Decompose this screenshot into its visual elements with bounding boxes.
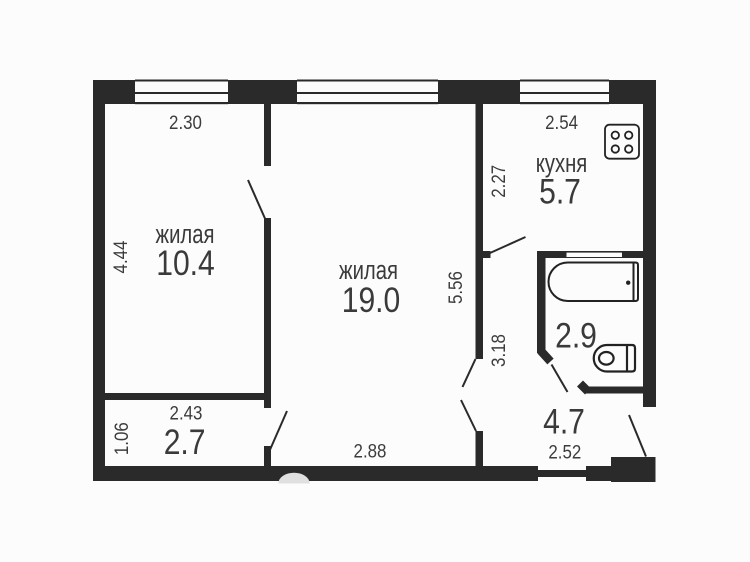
svg-text:2.52: 2.52 [548,441,581,462]
svg-text:1.06: 1.06 [111,422,132,455]
svg-text:2.9: 2.9 [555,315,597,355]
svg-text:2.30: 2.30 [169,112,202,133]
svg-text:4.7: 4.7 [543,401,585,441]
svg-text:2.43: 2.43 [170,403,203,424]
svg-text:10.4: 10.4 [156,243,215,283]
svg-text:2.27: 2.27 [488,165,509,198]
svg-text:5.56: 5.56 [445,271,466,304]
svg-text:2.88: 2.88 [354,441,387,462]
svg-text:19.0: 19.0 [342,280,401,320]
svg-text:2.7: 2.7 [164,422,206,462]
svg-text:5.7: 5.7 [539,171,581,211]
svg-text:2.54: 2.54 [545,112,578,133]
svg-text:4.44: 4.44 [110,241,131,274]
svg-text:3.18: 3.18 [488,334,509,367]
